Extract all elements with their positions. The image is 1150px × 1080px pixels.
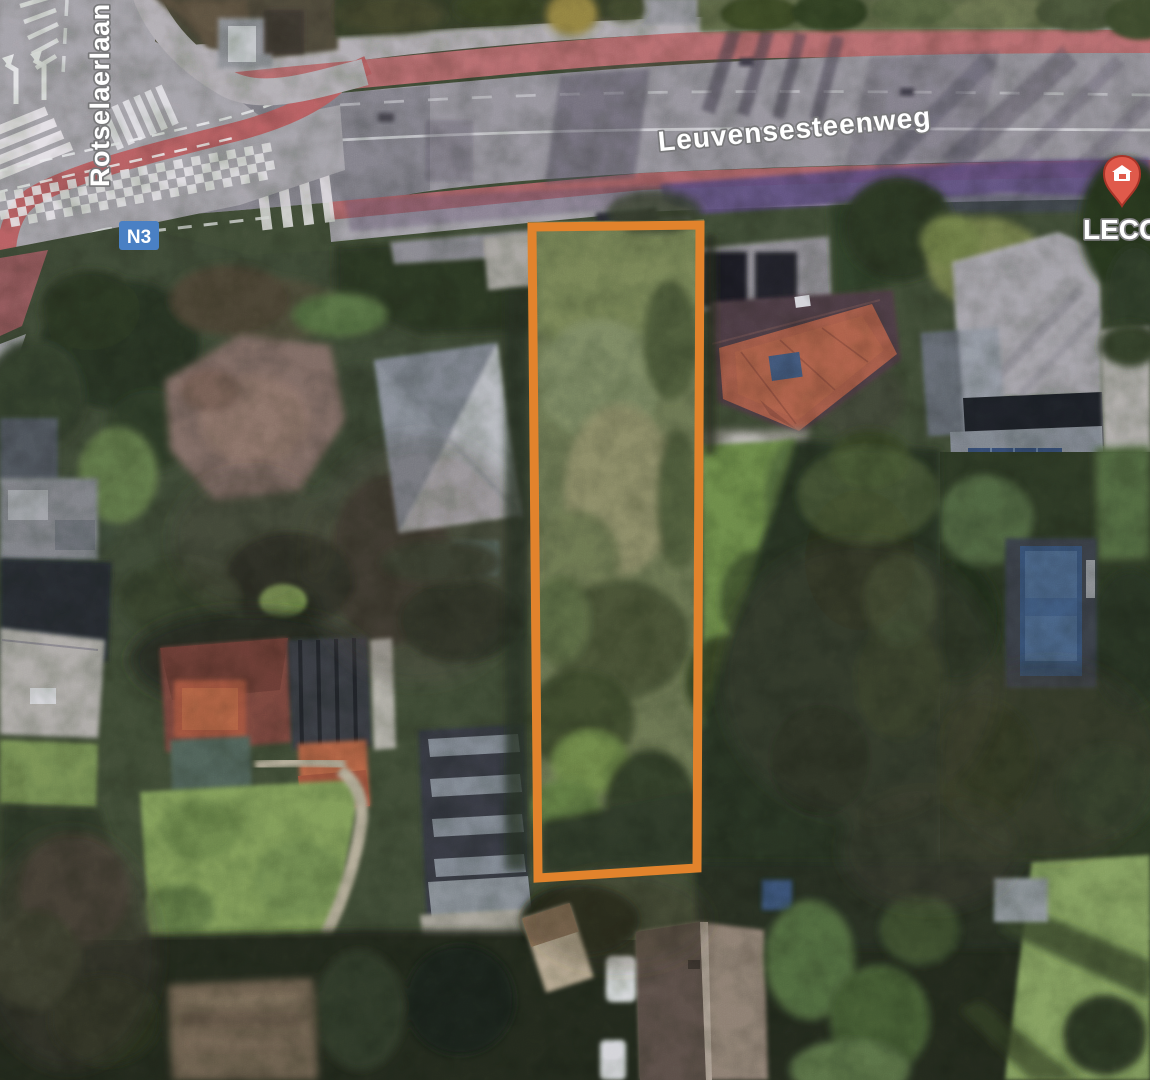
svg-text:LECOM: LECOM: [1083, 214, 1150, 245]
svg-text:N3: N3: [127, 227, 151, 248]
svg-text:Rotselaerlaan: Rotselaerlaan: [85, 3, 115, 187]
